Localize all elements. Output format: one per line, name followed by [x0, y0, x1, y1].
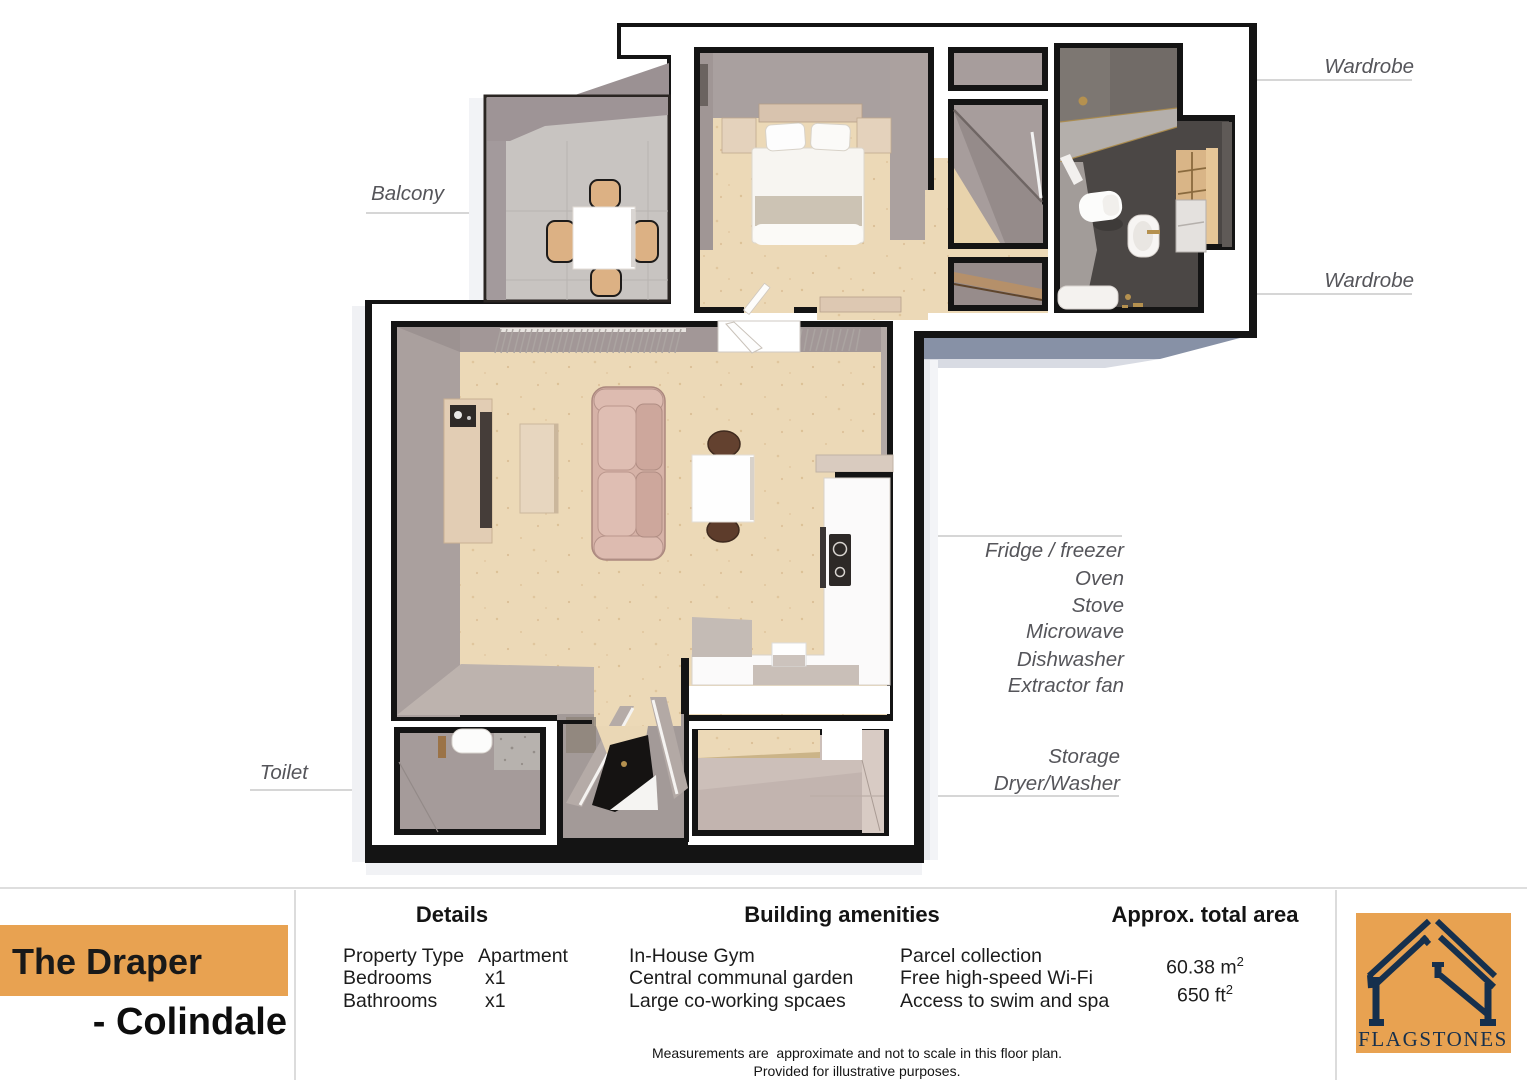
svg-text:Wardrobe: Wardrobe [1324, 55, 1414, 78]
svg-text:Toilet: Toilet [260, 761, 310, 784]
svg-text:Microwave: Microwave [1026, 620, 1124, 643]
svg-text:FLAGSTONES: FLAGSTONES [1358, 1027, 1508, 1051]
svg-text:Wardrobe: Wardrobe [1324, 269, 1414, 292]
svg-text:Balcony: Balcony [371, 182, 446, 205]
svg-text:Extractor fan: Extractor fan [1008, 674, 1124, 697]
svg-text:Oven: Oven [1075, 567, 1124, 590]
svg-text:Stove: Stove [1072, 594, 1124, 617]
svg-text:Fridge / freezer: Fridge / freezer [985, 539, 1125, 562]
svg-text:Dryer/Washer: Dryer/Washer [994, 772, 1121, 795]
svg-text:Dishwasher: Dishwasher [1017, 648, 1125, 671]
svg-text:Storage: Storage [1048, 745, 1120, 768]
